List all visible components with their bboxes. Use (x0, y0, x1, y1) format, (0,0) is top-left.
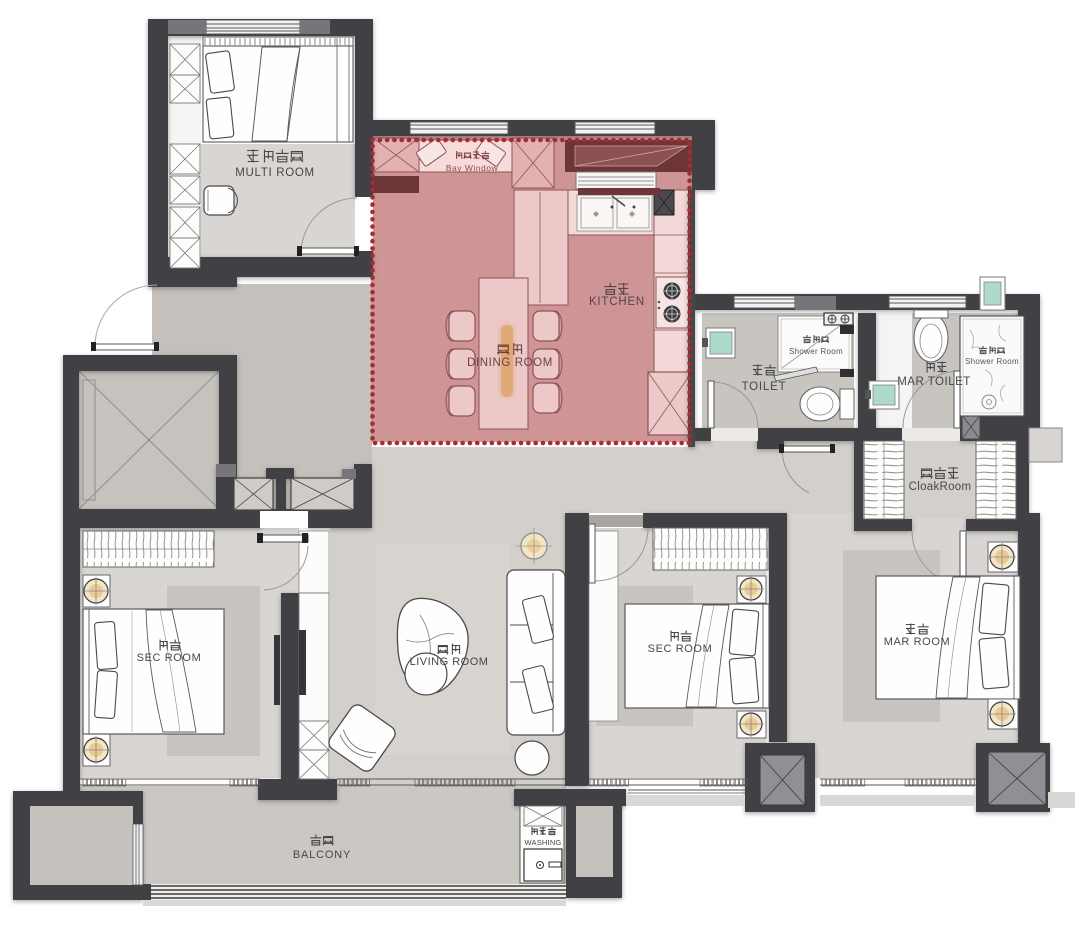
svg-text:Bay Window: Bay Window (446, 163, 499, 173)
svg-text:TOILET: TOILET (742, 381, 787, 393)
svg-text:Shower Room: Shower Room (965, 357, 1019, 366)
svg-text:Shower Room: Shower Room (789, 347, 843, 356)
svg-text:MAR ROOM: MAR ROOM (884, 636, 951, 648)
svg-text:DINING ROOM: DINING ROOM (467, 357, 553, 369)
svg-text:WASHING: WASHING (525, 838, 562, 847)
svg-text:BALCONY: BALCONY (293, 849, 351, 861)
svg-text:SEC ROOM: SEC ROOM (648, 643, 713, 655)
svg-text:SEC ROOM: SEC ROOM (137, 652, 202, 664)
svg-text:CloakRoom: CloakRoom (909, 481, 972, 493)
svg-text:MAR TOILET: MAR TOILET (897, 376, 971, 388)
svg-text:LIVING ROOM: LIVING ROOM (410, 656, 489, 668)
svg-text:KITCHEN: KITCHEN (589, 296, 645, 308)
svg-text:MULTI ROOM: MULTI ROOM (235, 167, 315, 179)
